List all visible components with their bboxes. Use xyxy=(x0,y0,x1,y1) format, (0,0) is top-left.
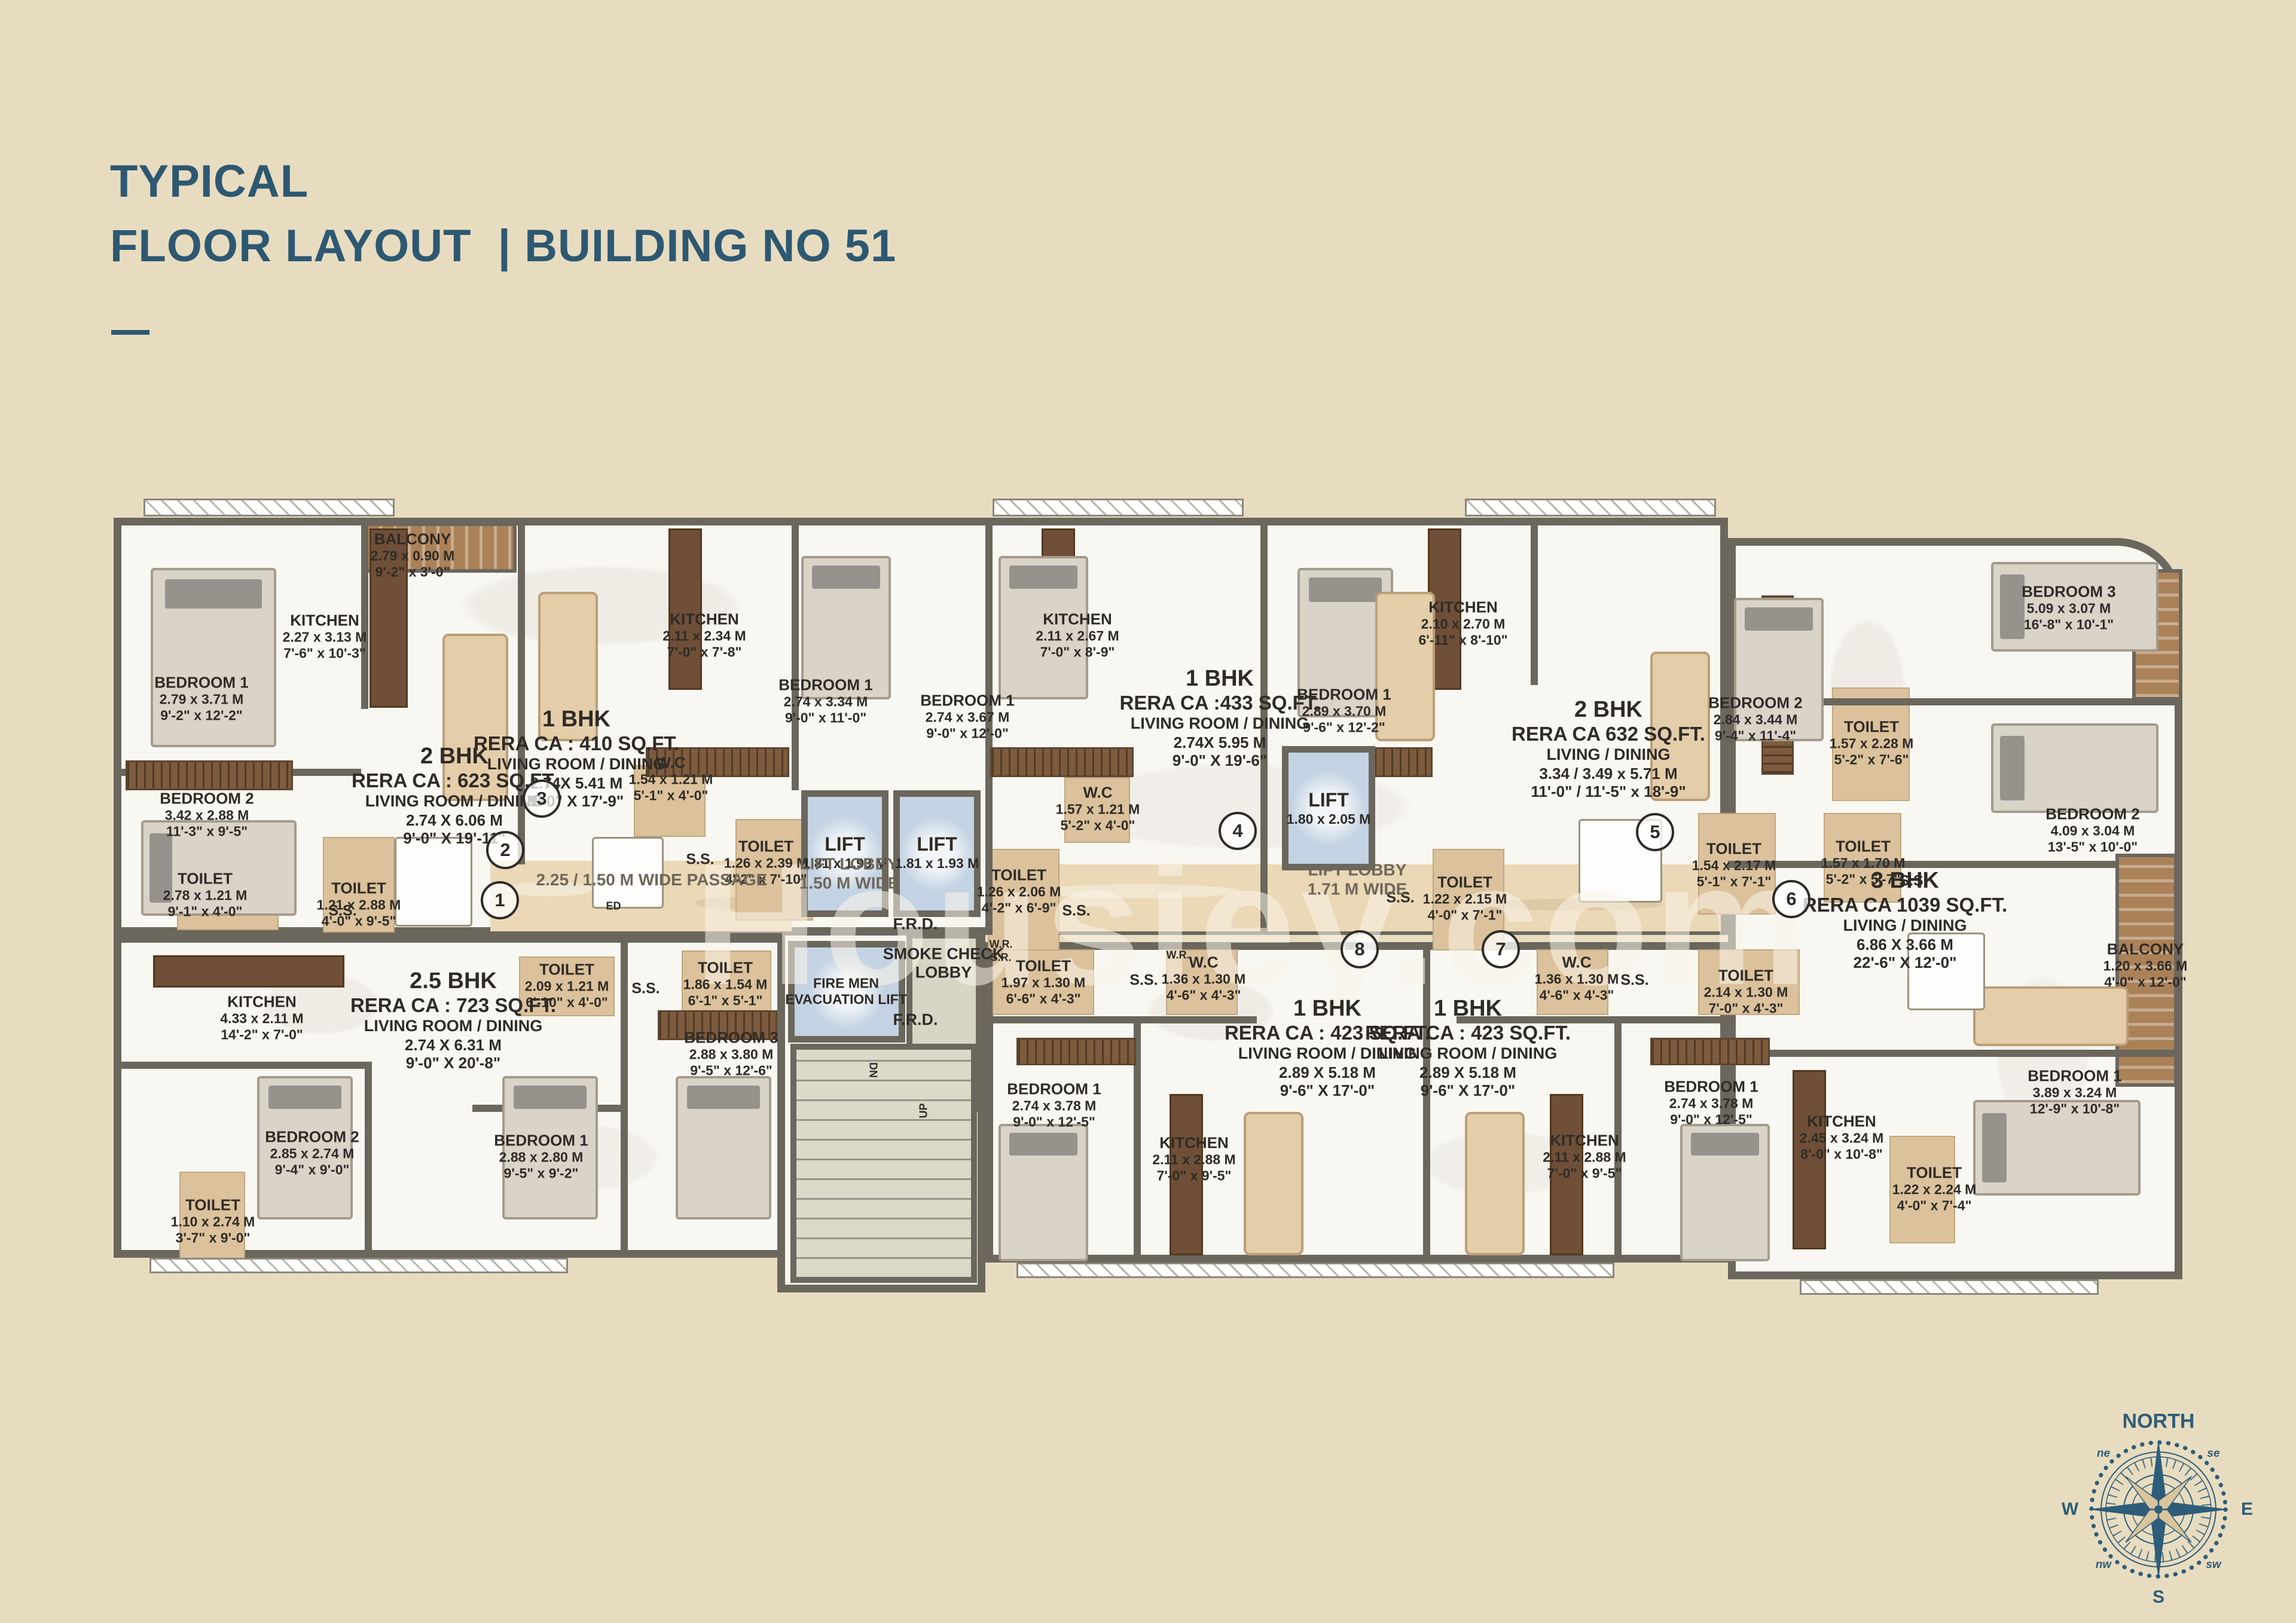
unit-number: 5 xyxy=(1636,813,1674,851)
unit-number: 1 xyxy=(481,881,519,919)
sofa xyxy=(1973,986,2129,1046)
floor-plan: BALCONY2.79 x 0.90 M9'-2" x 3'-0"KITCHEN… xyxy=(0,0,2296,1623)
compass-se: se xyxy=(2207,1447,2219,1460)
room-label: KITCHEN2.11 x 2.34 M7'-0" x 7'-8" xyxy=(662,610,746,660)
unit-label: 2 BHKRERA CA 632 SQ.FT.LIVING / DINING3.… xyxy=(1512,696,1705,800)
ss-label: S.S. xyxy=(1899,873,1927,890)
room-label: BEDROOM 12.74 x 3.78 M9'-0" x 12'-5" xyxy=(1664,1077,1758,1127)
core-label: F.R.D. xyxy=(893,915,938,933)
ward xyxy=(990,747,1134,777)
sill xyxy=(143,499,395,516)
core-label: F.R.D. xyxy=(893,1010,938,1029)
room-label: TOILET1.10 x 2.74 M3'-7" x 9'-0" xyxy=(171,1196,255,1246)
wall xyxy=(114,1062,371,1069)
room-label: KITCHEN4.33 x 2.11 M14'-2" x 7'-0" xyxy=(220,992,303,1043)
room-label: TOILET2.14 x 1.30 M7'-0" x 4'-3" xyxy=(1704,966,1788,1016)
room-label: KITCHEN2.11 x 2.88 M7'-0" x 9'-5" xyxy=(1152,1133,1235,1184)
sill xyxy=(1016,1263,1614,1278)
wall xyxy=(792,518,799,790)
unit-number: 3 xyxy=(523,780,561,818)
unit-number: 6 xyxy=(1772,880,1810,918)
room-label: TOILET2.78 x 1.21 M9'-1" x 4'-0" xyxy=(163,869,248,919)
room-label: TOILET1.54 x 2.17 M5'-1" x 7'-1" xyxy=(1692,839,1776,890)
ctr xyxy=(153,955,344,988)
room-label: KITCHEN2.27 x 3.13 M7'-6" x 10'-3" xyxy=(283,611,367,661)
room-label: BALCONY2.79 x 0.90 M9'-2" x 3'-0" xyxy=(371,530,455,580)
ss-label: S.S. xyxy=(631,980,660,998)
room-label: TOILET1.22 x 2.24 M4'-0" x 7'-4" xyxy=(1892,1163,1977,1214)
room-label: BEDROOM 12.74 x 3.34 M9'-0" x 11'-0" xyxy=(778,676,872,726)
room-label: BEDROOM 12.79 x 3.71 M9'-2" x 12'-2" xyxy=(154,673,248,723)
room-label: TOILET1.97 x 1.30 M6'-6" x 4'-3" xyxy=(1002,956,1086,1007)
room-label: BEDROOM 22.84 x 3.44 M9'-4" x 11'-4" xyxy=(1708,693,1802,744)
sill xyxy=(149,1258,568,1273)
room-label: BEDROOM 12.74 x 3.67 M9'-0" x 12'-0" xyxy=(920,691,1014,741)
bed xyxy=(999,1124,1088,1261)
compass-west: W xyxy=(2062,1499,2078,1520)
ward xyxy=(126,760,293,790)
unit-number: 2 xyxy=(486,831,524,869)
stair-label: UP xyxy=(918,1103,930,1118)
sill xyxy=(993,499,1244,516)
room-label: KITCHEN2.11 x 2.67 M7'-0" x 8'-9" xyxy=(1036,610,1119,660)
wall xyxy=(365,1062,372,1258)
room-label: BEDROOM 12.88 x 2.80 M9'-5" x 9'-2" xyxy=(494,1131,588,1181)
ss-label: S.S. xyxy=(1620,972,1648,989)
compass: NORTH S W E ne se nw sw xyxy=(2057,1411,2260,1608)
room-label: TOILET1.86 x 1.54 M6'-1" x 5'-1" xyxy=(683,958,768,1008)
unit-label: 2.5 BHKRERA CA : 723 SQ.FT.LIVING ROOM /… xyxy=(350,968,556,1072)
sill xyxy=(1800,1279,2099,1295)
wall xyxy=(1531,518,1538,685)
wall xyxy=(621,935,628,1258)
room-label: KITCHEN2.11 x 2.88 M7'-0" x 9'-5" xyxy=(1543,1131,1626,1181)
room-label: TOILET1.22 x 2.15 M4'-0" x 7'-1" xyxy=(1423,873,1507,923)
compass-north: NORTH xyxy=(2123,1410,2195,1434)
lobby-label: LIFT LOBBY1.50 M WIDE xyxy=(799,855,899,894)
duct-label: ED xyxy=(606,900,621,913)
ctr xyxy=(668,528,702,690)
wall xyxy=(1728,1050,2182,1057)
ss-label: S.S. xyxy=(686,851,714,869)
room-label: BALCONY1.20 x 3.66 M4'-0" x 12'-0" xyxy=(2103,940,2188,990)
passage-label: 2.25 / 1.50 M WIDE PASSAGE xyxy=(536,870,768,890)
room-label: BEDROOM 13.89 x 3.24 M12'-9" x 10'-8" xyxy=(2028,1066,2121,1117)
bed xyxy=(1680,1124,1770,1261)
ward xyxy=(1016,1038,1136,1065)
room-label: TOILET1.26 x 2.06 M4'-2" x 6'-9" xyxy=(977,866,1061,916)
unit-number: 4 xyxy=(1219,812,1257,850)
room-label: TOILET1.57 x 2.28 M5'-2" x 7'-6" xyxy=(1830,717,1914,768)
room-label: W.C1.57 x 1.21 M5'-2" x 4'-0" xyxy=(1056,783,1140,833)
room-label: BEDROOM 12.74 x 3.78 M9'-0" x 12'-5" xyxy=(1007,1080,1101,1130)
bedh xyxy=(1991,723,2158,813)
lift-label: LIFT1.81 x 1.93 M xyxy=(895,833,979,872)
room-label: BEDROOM 32.88 x 3.80 M9'-5" x 12'-6" xyxy=(684,1028,778,1078)
unit-number: 7 xyxy=(1482,930,1520,968)
sofa xyxy=(1465,1112,1525,1255)
ss-label: S.S. xyxy=(1129,972,1158,989)
ss-label: S.S. xyxy=(1062,903,1090,920)
room-label: W.R. xyxy=(1167,949,1190,962)
core-label: SMOKE CHECKLOBBY xyxy=(883,945,1004,983)
sill xyxy=(1465,499,1716,516)
unit-number: 8 xyxy=(1341,930,1379,968)
lift-label: LIFT1.80 x 2.05 M xyxy=(1287,789,1371,827)
core-label: W.R. xyxy=(990,939,1013,951)
room-label: KITCHEN2.45 x 3.24 M8'-0" x 10'-8" xyxy=(1800,1112,1884,1162)
compass-east: E xyxy=(2241,1499,2253,1520)
tbl xyxy=(395,837,472,927)
lobby-label: LIFT LOBBY1.71 M WIDE xyxy=(1308,861,1407,900)
unit-label: 1 BHKRERA CA : 410 SQ.FT.LIVING ROOM / D… xyxy=(474,706,679,810)
core-label: S.R. xyxy=(990,952,1011,964)
ss-label: S.S. xyxy=(328,903,356,920)
stairs xyxy=(790,1044,977,1283)
compass-south: S xyxy=(2152,1587,2164,1607)
unit-label: 1 BHKRERA CA : 423 SQ.FT.LIVING ROOM / D… xyxy=(1365,995,1571,1099)
ward xyxy=(1650,1038,1770,1065)
room-label: KITCHEN2.10 x 2.70 M6'-11" x 8'-10" xyxy=(1418,598,1507,648)
page: TYPICAL FLOOR LAYOUT | BUILDING NO 51 BA… xyxy=(0,0,2296,1623)
sofa xyxy=(1244,1112,1303,1255)
room-label: BEDROOM 35.09 x 3.07 M16'-8" x 10'-1" xyxy=(2022,582,2115,632)
bed xyxy=(676,1076,771,1219)
room-label: BEDROOM 23.42 x 2.88 M11'-3" x 9'-5" xyxy=(160,789,254,839)
room-label: BEDROOM 24.09 x 3.04 M13'-5" x 10'-0" xyxy=(2045,805,2139,855)
unit-label: 1 BHKRERA CA :433 SQ.FT.LIVING ROOM / DI… xyxy=(1120,665,1320,769)
stair-label: DN xyxy=(867,1062,880,1078)
compass-nw: nw xyxy=(2096,1558,2111,1572)
compass-ne: ne xyxy=(2097,1447,2110,1460)
room-label: BEDROOM 22.85 x 2.74 M9'-4" x 9'-0" xyxy=(265,1127,359,1178)
compass-sw: sw xyxy=(2206,1558,2221,1572)
